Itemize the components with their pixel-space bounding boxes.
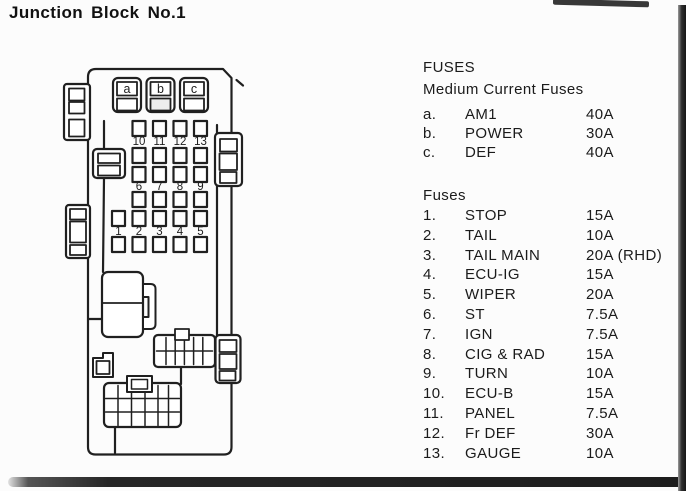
fuse-name: TAIL bbox=[465, 226, 586, 246]
fuse-rating: 7.5A bbox=[586, 404, 618, 424]
fuse-id: 12. bbox=[423, 424, 465, 444]
medium-current-fuses-title: Medium Current Fuses bbox=[423, 80, 679, 100]
corner-tick bbox=[237, 80, 244, 86]
fuse-pos-1: 1 bbox=[115, 226, 121, 238]
fuse-row: 1. STOP 15A bbox=[423, 206, 679, 226]
fuse-row: 10. ECU-B 15A bbox=[423, 384, 679, 404]
medium-fuse-row: b. POWER 30A bbox=[423, 124, 679, 143]
fuse-pos-8: 8 bbox=[177, 181, 183, 193]
fuse-rating: 30A bbox=[586, 424, 614, 444]
fuse-row: 5. WIPER 20A bbox=[423, 285, 679, 305]
medium-fuse-row: c. DEF 40A bbox=[423, 143, 679, 162]
fuse-name: IGN bbox=[465, 325, 586, 345]
fuse-id: 4. bbox=[423, 265, 465, 285]
fuse-rating: 7.5A bbox=[586, 305, 618, 325]
fuse-id: 8. bbox=[423, 345, 465, 365]
right-connector-upper bbox=[215, 133, 242, 186]
fuse-id: 7. bbox=[423, 325, 465, 345]
fuse-pos-6: 6 bbox=[136, 181, 142, 193]
fuse-label-c: c bbox=[191, 82, 197, 96]
fuse-pos-7: 7 bbox=[156, 181, 162, 193]
fuse-name: DEF bbox=[465, 143, 586, 162]
fuse-id: 10. bbox=[423, 384, 465, 404]
fuse-name: POWER bbox=[465, 124, 586, 143]
fuse-pos-9: 9 bbox=[197, 181, 203, 193]
fuse-name: AM1 bbox=[465, 105, 586, 124]
fuse-rating: 7.5A bbox=[586, 325, 618, 345]
fuse-row: 13. GAUGE 10A bbox=[423, 444, 679, 464]
fuses-list-title: Fuses bbox=[423, 186, 679, 206]
connector-bottom-grid bbox=[104, 376, 181, 427]
fuse-row: 3. TAIL MAIN 20A (RHD) bbox=[423, 246, 679, 266]
fuse-rating: 10A bbox=[586, 364, 614, 384]
fuse-rating: 15A bbox=[586, 206, 614, 226]
fuse-label-a: a bbox=[124, 82, 131, 96]
fuse-name: CIG & RAD bbox=[465, 345, 586, 365]
fuse-list: 1. STOP 15A 2. TAIL 10A 3. TAIL MAIN 20A… bbox=[423, 206, 679, 463]
fuse-name: TURN bbox=[465, 364, 586, 384]
fuse-row: 4. ECU-IG 15A bbox=[423, 265, 679, 285]
fuse-pos-12: 12 bbox=[174, 136, 187, 148]
relay-connector bbox=[102, 272, 156, 337]
fuse-pos-5: 5 bbox=[197, 226, 203, 238]
fuse-id: 5. bbox=[423, 285, 465, 305]
fuse-name: GAUGE bbox=[465, 444, 586, 464]
medium-fuse-list: a. AM1 40A b. POWER 30A c. DEF 40A bbox=[423, 105, 679, 162]
fuse-rating: 40A bbox=[586, 143, 614, 162]
fuse-row: 11. PANEL 7.5A bbox=[423, 404, 679, 424]
fuse-name: ST bbox=[465, 305, 586, 325]
right-connector-lower bbox=[216, 335, 241, 383]
fuse-name: TAIL MAIN bbox=[465, 246, 586, 266]
left-wall-connector bbox=[93, 149, 125, 178]
connector-mid-grid bbox=[154, 329, 215, 367]
scan-edge-right bbox=[678, 5, 686, 491]
manual-page: Junction Block No.1 bbox=[0, 0, 686, 491]
fuse-name: ECU-IG bbox=[465, 265, 586, 285]
fuse-name: ECU-B bbox=[465, 384, 586, 404]
left-connector-lower bbox=[66, 205, 90, 258]
fuse-id: 9. bbox=[423, 364, 465, 384]
fuse-legend-panel: FUSES Medium Current Fuses a. AM1 40A b.… bbox=[423, 57, 679, 463]
fuse-rating: 10A bbox=[586, 226, 614, 246]
fuse-row: 2. TAIL 10A bbox=[423, 226, 679, 246]
fuse-rating: 40A bbox=[586, 105, 614, 124]
fuse-id: c. bbox=[423, 143, 465, 162]
fuse-rating: 30A bbox=[586, 124, 614, 143]
fuse-pos-3: 3 bbox=[156, 226, 162, 238]
fuses-heading: FUSES bbox=[423, 57, 679, 78]
fuse-id: 3. bbox=[423, 246, 465, 266]
fuse-pos-11: 11 bbox=[154, 136, 166, 148]
fuse-rating: 20A (RHD) bbox=[586, 246, 662, 266]
fuse-pos-2: 2 bbox=[136, 226, 142, 238]
fuse-name: Fr DEF bbox=[465, 424, 586, 444]
medium-fuse-row: a. AM1 40A bbox=[423, 105, 679, 124]
fuse-row: 9. TURN 10A bbox=[423, 364, 679, 384]
small-square-connector bbox=[93, 353, 113, 377]
scan-edge-bottom bbox=[8, 477, 678, 487]
fuse-rating: 15A bbox=[586, 345, 614, 365]
fuse-pos-13: 13 bbox=[194, 136, 207, 148]
fuse-name: PANEL bbox=[465, 404, 586, 424]
fuse-id: 11. bbox=[423, 404, 465, 424]
fuse-label-b: b bbox=[157, 82, 164, 96]
fuse-id: b. bbox=[423, 124, 465, 143]
fuse-row: 6. ST 7.5A bbox=[423, 305, 679, 325]
fuse-name: WIPER bbox=[465, 285, 586, 305]
fuse-id: a. bbox=[423, 105, 465, 124]
fuse-pos-10: 10 bbox=[133, 136, 146, 148]
fuse-id: 6. bbox=[423, 305, 465, 325]
fuse-id: 13. bbox=[423, 444, 465, 464]
fuse-id: 2. bbox=[423, 226, 465, 246]
fuse-id: 1. bbox=[423, 206, 465, 226]
fuse-row: 8. CIG & RAD 15A bbox=[423, 345, 679, 365]
fuse-rating: 10A bbox=[586, 444, 614, 464]
left-connector-top bbox=[64, 84, 90, 140]
fuse-pos-4: 4 bbox=[177, 226, 184, 238]
fuse-name: STOP bbox=[465, 206, 586, 226]
fuse-rating: 15A bbox=[586, 384, 614, 404]
fuse-rating: 15A bbox=[586, 265, 614, 285]
fuse-row: 12. Fr DEF 30A bbox=[423, 424, 679, 444]
fuse-rating: 20A bbox=[586, 285, 614, 305]
fuse-row: 7. IGN 7.5A bbox=[423, 325, 679, 345]
